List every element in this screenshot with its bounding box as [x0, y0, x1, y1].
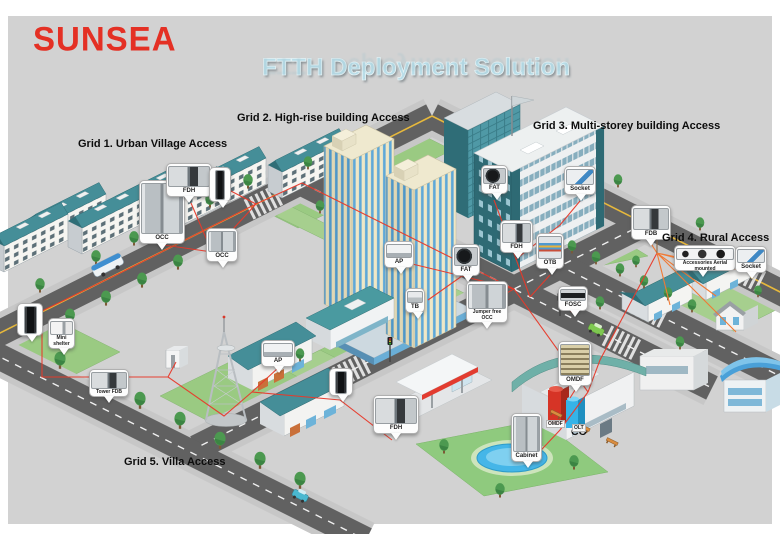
- callout-label: FAT: [489, 185, 500, 192]
- callout-label: Tower FDB: [96, 390, 122, 396]
- callout-jumper-free-occ: Jumper free OCC: [466, 281, 508, 323]
- callout-fdh-grid1: FDH: [166, 163, 212, 197]
- callout-label: AP: [274, 358, 282, 365]
- callout-fat-grid3: FAT: [481, 165, 508, 194]
- splice-closure-callout: [329, 368, 353, 396]
- callout-label: FOSC: [565, 302, 582, 309]
- callout-fdh-grid5: FDH: [373, 395, 419, 434]
- olt-tag: OLT: [572, 424, 586, 432]
- callout-mini-shelter: Mini shelter: [48, 318, 75, 349]
- fiber-distribution-hub-icon: [168, 166, 210, 187]
- callout-fosc: FOSC: [558, 286, 588, 311]
- page-title-reflection: FTTH Deployment Solution: [262, 51, 570, 79]
- optical-terminal-box-icon: [538, 236, 562, 259]
- wall-mounted-cabinet-icon: [208, 231, 236, 252]
- callout-label: OCC: [155, 235, 168, 242]
- grid4-label: Grid 4. Rural Access: [662, 232, 769, 244]
- aerial-splice-closure-icon: [335, 371, 347, 394]
- callout-tower-fdb: Tower FDB: [89, 369, 129, 397]
- fiber-distribution-box-icon: [91, 372, 127, 389]
- callout-cabinet: Cabinet: [511, 413, 542, 462]
- callout-label: Socket: [741, 264, 761, 271]
- terminal-box-icon: [407, 291, 423, 303]
- access-point-panel-icon: [263, 343, 293, 357]
- splice-closure-callout: [209, 167, 231, 202]
- aerial-splice-closure-icon: [24, 306, 37, 334]
- distribution-frame-rack-icon: [560, 344, 590, 376]
- callout-label: Socket: [570, 186, 590, 193]
- fiber-access-terminal-icon: [454, 247, 478, 266]
- callout-label: FDH: [183, 188, 195, 195]
- fiber-socket-icon: [737, 249, 765, 263]
- fiber-access-terminal-icon: [483, 168, 506, 184]
- access-point-panel-icon: [386, 244, 412, 258]
- outdoor-cabinet-icon: [513, 416, 540, 452]
- aerial-splice-closure-icon: [215, 170, 226, 200]
- callout-occ-grid1b: OCC: [206, 228, 238, 262]
- grid1-label: Grid 1. Urban Village Access: [78, 138, 227, 150]
- callout-label: AP: [395, 259, 403, 266]
- fiber-socket-icon: [566, 169, 594, 185]
- callout-omdf: OMDF: [558, 341, 592, 386]
- callout-otb: OTB: [536, 233, 564, 269]
- callout-aerial-accessories: Accessories Aerial mounted: [674, 245, 736, 271]
- fiber-distribution-hub-icon: [375, 398, 417, 424]
- callout-tb-grid2: TB: [405, 288, 425, 313]
- sunsea-logo: SUNSEA: [33, 19, 177, 59]
- callout-label: FDH: [390, 425, 402, 432]
- mini-shelter-building: [166, 346, 188, 368]
- splice-closure-callout: [17, 303, 43, 336]
- fiber-distribution-box-icon: [633, 208, 669, 230]
- callout-label: OMDF: [566, 377, 584, 384]
- street-cabinet-icon: [468, 284, 506, 309]
- callout-label: TB: [411, 304, 419, 311]
- callout-label: FDB: [645, 231, 657, 238]
- callout-fdh-grid3: FDH: [500, 220, 533, 253]
- grid2-label: Grid 2. High-rise building Access: [237, 112, 410, 124]
- callout-ap-grid5: AP: [261, 340, 295, 367]
- callout-label: Jumper free OCC: [469, 310, 505, 321]
- callout-label: FDH: [510, 244, 522, 251]
- callout-label: OTB: [544, 260, 557, 267]
- grid5-label: Grid 5. Villa Access: [124, 456, 226, 468]
- fiber-splice-closure-icon: [560, 289, 586, 301]
- grid3-label: Grid 3. Multi-storey building Access: [533, 120, 720, 132]
- mini-shelter-icon: [50, 321, 73, 335]
- callout-label: OCC: [215, 253, 228, 260]
- omdf-tag: OMDF: [546, 420, 565, 428]
- callout-label: Cabinet: [515, 453, 537, 460]
- callout-ap-grid2: AP: [384, 241, 414, 268]
- callout-label: Mini shelter: [51, 336, 72, 347]
- ftth-solution-diagram: SUNSEA FTTH Deployment Solution FTTH Dep…: [0, 0, 780, 534]
- fiber-distribution-hub-icon: [502, 223, 531, 243]
- callout-fat-grid2: FAT: [452, 244, 480, 276]
- callout-socket-grid3: Socket: [564, 166, 596, 195]
- callout-label: FAT: [461, 267, 472, 274]
- aerial-accessories-icon: [676, 248, 734, 260]
- callout-socket-grid4: Socket: [735, 246, 767, 273]
- callout-label: Accessories Aerial mounted: [677, 261, 733, 272]
